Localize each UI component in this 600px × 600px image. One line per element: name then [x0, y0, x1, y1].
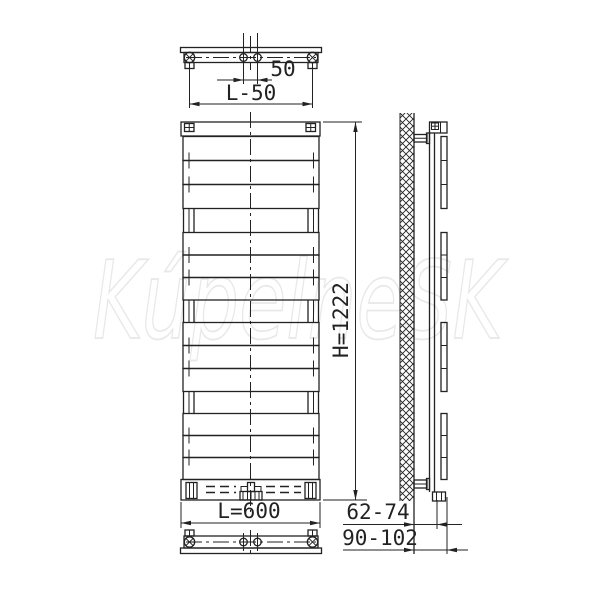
wall-hatch	[400, 113, 414, 501]
bottom-view-right-bracket	[307, 530, 317, 547]
dim-width: L=600	[181, 499, 320, 528]
dim-label-bracket-spacing: L-50	[226, 81, 277, 105]
dim-wall-to-pipe: 62-74	[343, 500, 462, 529]
top-view-right-bracket	[307, 52, 317, 68]
front-top-left-bracket	[185, 124, 195, 132]
dim-label-width: L=600	[217, 499, 280, 523]
side-top-bracket	[414, 133, 430, 144]
drawing-canvas: KúpelneSK 50	[0, 0, 600, 600]
front-top-right-bracket	[306, 124, 316, 132]
side-top-rail-section	[430, 122, 448, 133]
bottom-right-bracket	[305, 483, 316, 499]
top-view-left-bracket	[184, 52, 194, 68]
dim-label-height: H=1222	[329, 282, 353, 358]
dim-label-wall-to-face: 90-102	[342, 526, 418, 550]
dim-label-port-spacing: 50	[270, 57, 295, 81]
side-bottom-bracket	[414, 479, 430, 490]
dim-port-spacing: 50	[217, 33, 296, 84]
side-bottom-valve	[433, 492, 446, 501]
bottom-left-bracket	[186, 483, 197, 499]
dim-label-wall-to-pipe: 62-74	[346, 500, 409, 524]
bottom-view-left-bracket	[184, 530, 194, 547]
bottom-view	[181, 530, 322, 556]
radiator-technical-drawing: KúpelneSK 50	[0, 0, 600, 600]
top-view: 50 L-50	[181, 33, 322, 108]
